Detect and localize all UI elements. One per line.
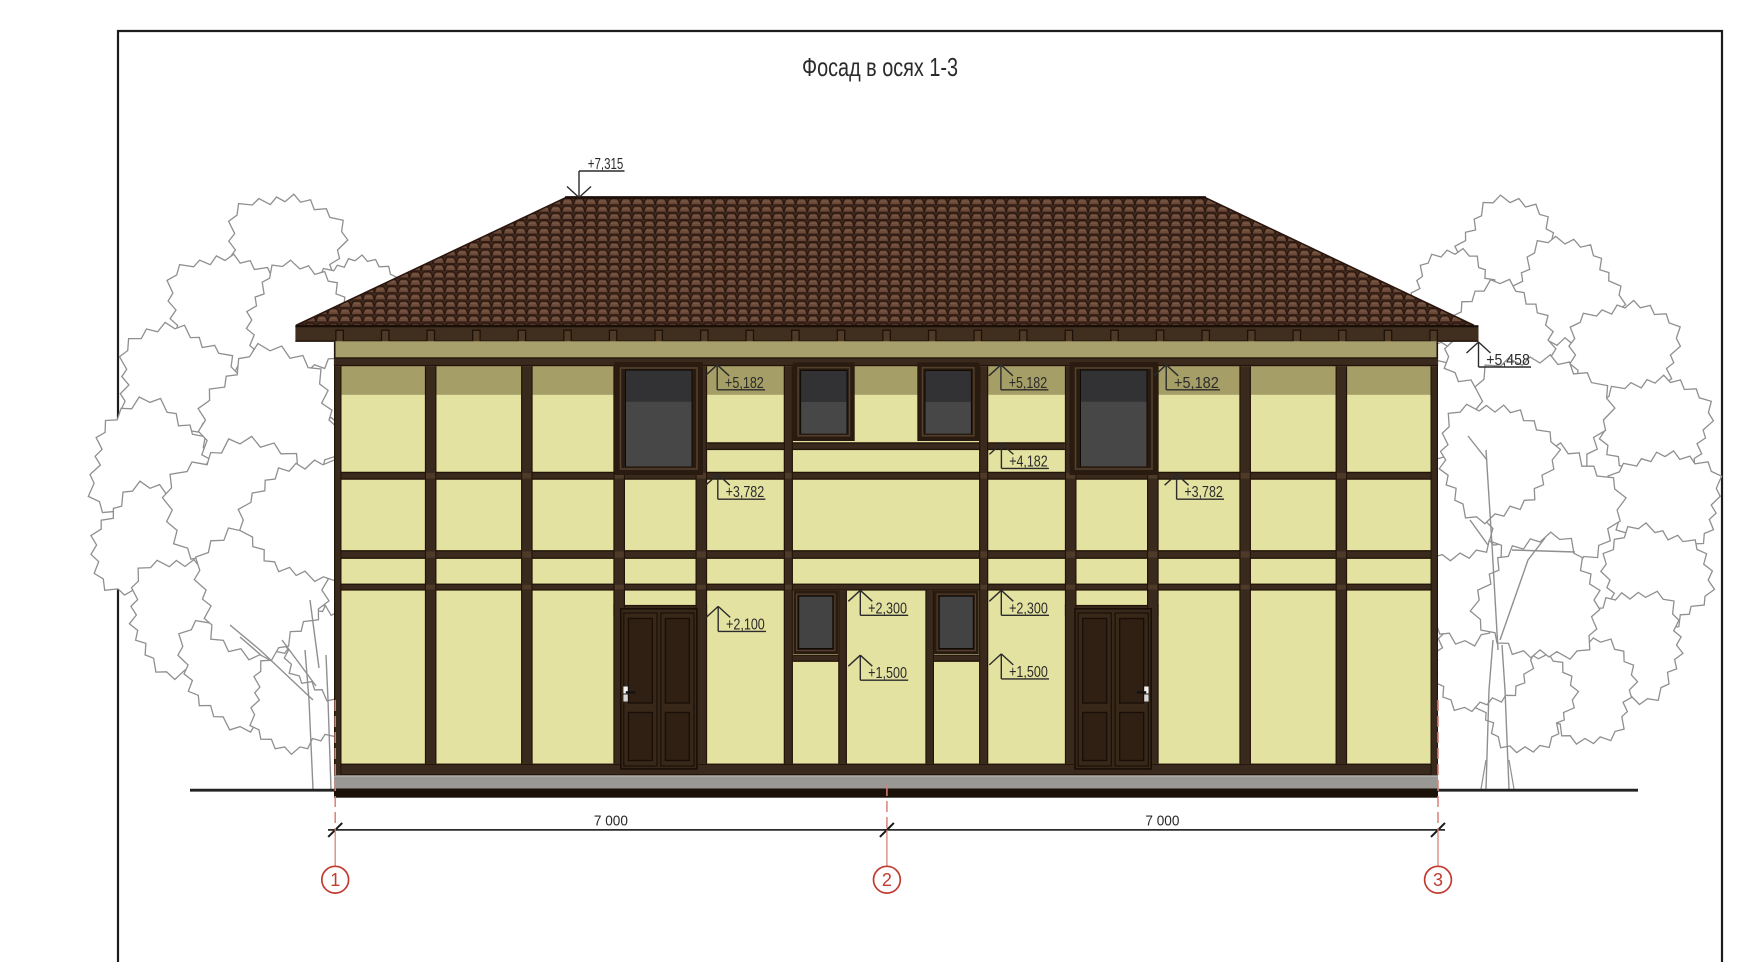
svg-text:+1,500: +1,500 (1009, 664, 1048, 681)
svg-text:1: 1 (330, 870, 340, 890)
svg-text:+3,782: +3,782 (726, 484, 765, 501)
svg-text:2: 2 (882, 870, 892, 890)
svg-text:+5,182: +5,182 (1174, 375, 1219, 392)
svg-text:3: 3 (1433, 870, 1443, 890)
svg-text:+5,458: +5,458 (1486, 352, 1530, 369)
svg-text:+3,782: +3,782 (1184, 484, 1222, 501)
svg-text:+2,300: +2,300 (868, 600, 907, 617)
svg-text:+2,100: +2,100 (726, 616, 765, 633)
svg-text:7 000: 7 000 (1145, 812, 1179, 829)
svg-text:+5,182: +5,182 (1009, 375, 1048, 392)
svg-text:7 000: 7 000 (594, 812, 628, 829)
svg-text:+2,300: +2,300 (1009, 600, 1048, 617)
svg-text:+5,182: +5,182 (725, 375, 764, 392)
svg-text:Фосад в осях 1-3: Фосад в осях 1-3 (802, 52, 958, 82)
svg-text:+4,182: +4,182 (1009, 453, 1048, 470)
svg-text:+7,315: +7,315 (588, 156, 624, 173)
svg-text:+1,500: +1,500 (868, 665, 907, 682)
